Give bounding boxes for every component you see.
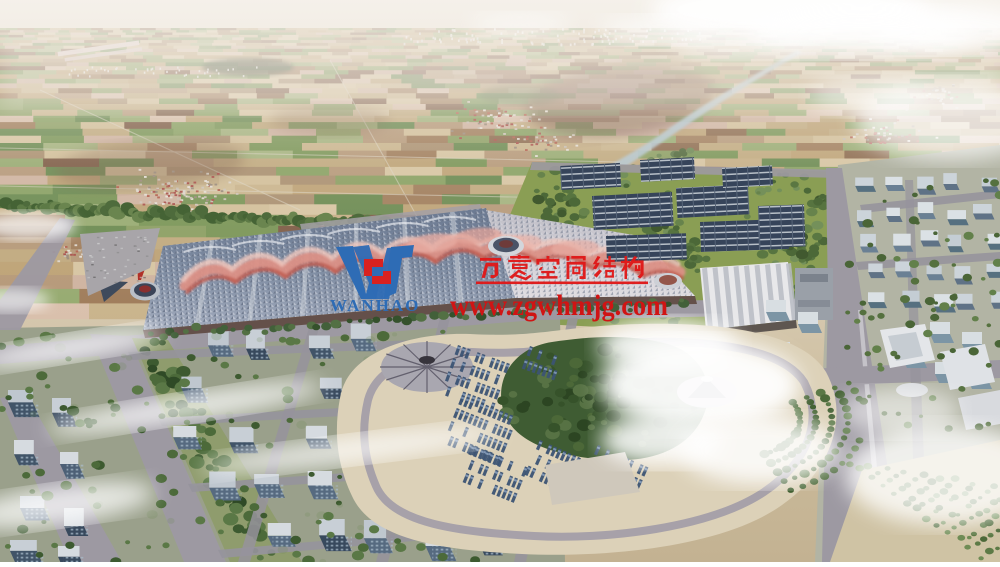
- svg-text:www.zgwhmjg.com: www.zgwhmjg.com: [450, 289, 668, 322]
- svg-text:WANHAO: WANHAO: [330, 296, 420, 315]
